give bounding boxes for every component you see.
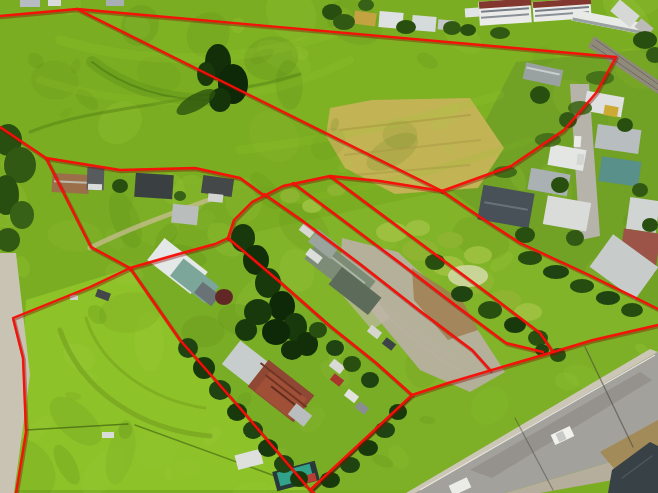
strip-top-shrub bbox=[280, 189, 300, 203]
east-fence-hedge bbox=[361, 372, 379, 388]
houseblock-tree bbox=[262, 319, 290, 345]
right-suburb-tree bbox=[617, 118, 633, 132]
right-suburb-tree bbox=[632, 183, 648, 197]
left-vegetation bbox=[10, 201, 34, 229]
farmyard-tree bbox=[112, 179, 128, 193]
street-car-1 bbox=[574, 136, 582, 148]
street-car-2 bbox=[577, 154, 585, 166]
strip-shrub bbox=[406, 220, 430, 236]
ne-boundary-hedge bbox=[543, 265, 569, 279]
strip-shrub bbox=[437, 232, 463, 248]
paddock-white-bench bbox=[102, 432, 114, 438]
top-suburb-tree bbox=[490, 27, 510, 39]
tr-corner-tree bbox=[633, 31, 657, 49]
ne-boundary-hedge bbox=[621, 303, 643, 317]
farm-shed-light bbox=[171, 204, 199, 226]
farm-shed-tall-end bbox=[88, 184, 102, 190]
farmyard-tree bbox=[174, 191, 186, 201]
strip-shrub bbox=[464, 246, 492, 264]
strip-dark-bush bbox=[451, 286, 473, 302]
maroon-bush bbox=[215, 289, 233, 305]
top-suburb-tree bbox=[460, 24, 476, 36]
top-suburb-tree bbox=[333, 14, 355, 30]
houseblock-tree bbox=[235, 319, 257, 341]
right-suburb-tree bbox=[530, 86, 550, 104]
top-suburb-tree bbox=[396, 20, 416, 34]
ne-boundary-hedge bbox=[596, 291, 620, 305]
top-left-roof-2 bbox=[48, 0, 61, 6]
right-suburb-tree bbox=[642, 218, 658, 232]
right-suburb-tree bbox=[566, 230, 584, 246]
farm-trailer bbox=[208, 193, 224, 203]
east-fence-hedge bbox=[343, 356, 361, 372]
houseblock-tree bbox=[281, 340, 303, 360]
right-suburb-tree bbox=[551, 177, 569, 193]
aerial-photo bbox=[0, 0, 658, 493]
farm-shed-dark-1 bbox=[134, 173, 174, 200]
top-left-roof-1 bbox=[20, 0, 40, 7]
complex-small bbox=[465, 8, 480, 18]
east-fence-hedge bbox=[309, 322, 327, 338]
aerial-photograph-canvas bbox=[0, 0, 658, 493]
ne-boundary-hedge bbox=[570, 279, 594, 293]
top-suburb-tree bbox=[443, 21, 461, 35]
top-left-roof-3 bbox=[106, 0, 124, 6]
east-fence-hedge bbox=[326, 340, 344, 356]
